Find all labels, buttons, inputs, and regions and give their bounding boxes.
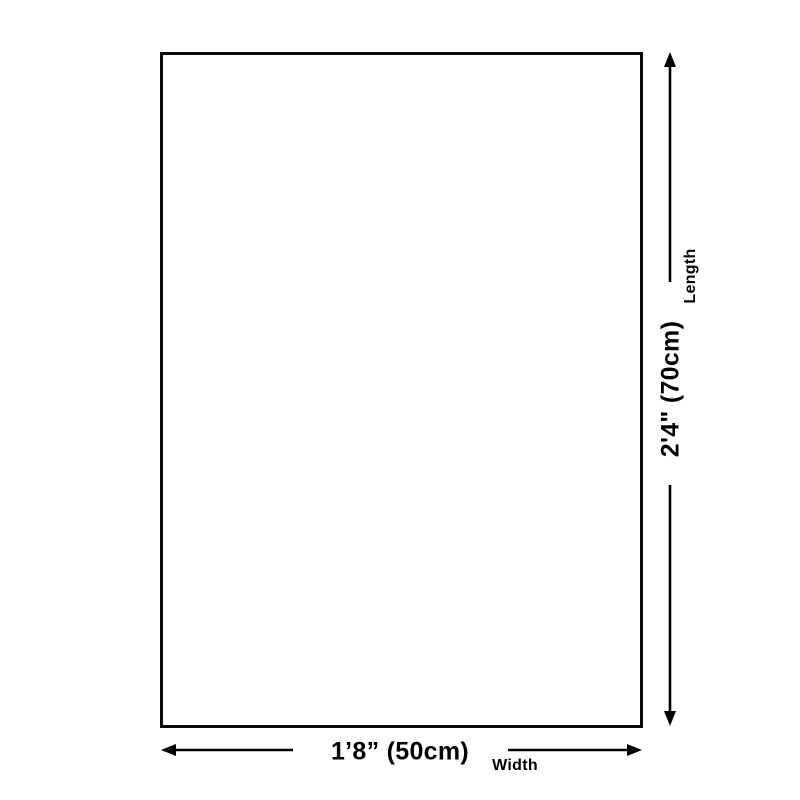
- length-dimension-value: 2'4" (70cm): [659, 321, 684, 457]
- width-dimension-value: 1’8” (50cm): [331, 740, 469, 765]
- arrow-right-icon: [627, 744, 642, 756]
- width-axis-label: Width: [492, 758, 538, 774]
- arrow-up-icon: [664, 52, 676, 67]
- arrow-left-icon: [161, 744, 176, 756]
- arrow-down-icon: [664, 711, 676, 726]
- length-axis-label: Length: [683, 248, 699, 303]
- product-dimension-diagram: 2'4" (70cm) Length 1’8” (50cm) Width: [0, 0, 800, 800]
